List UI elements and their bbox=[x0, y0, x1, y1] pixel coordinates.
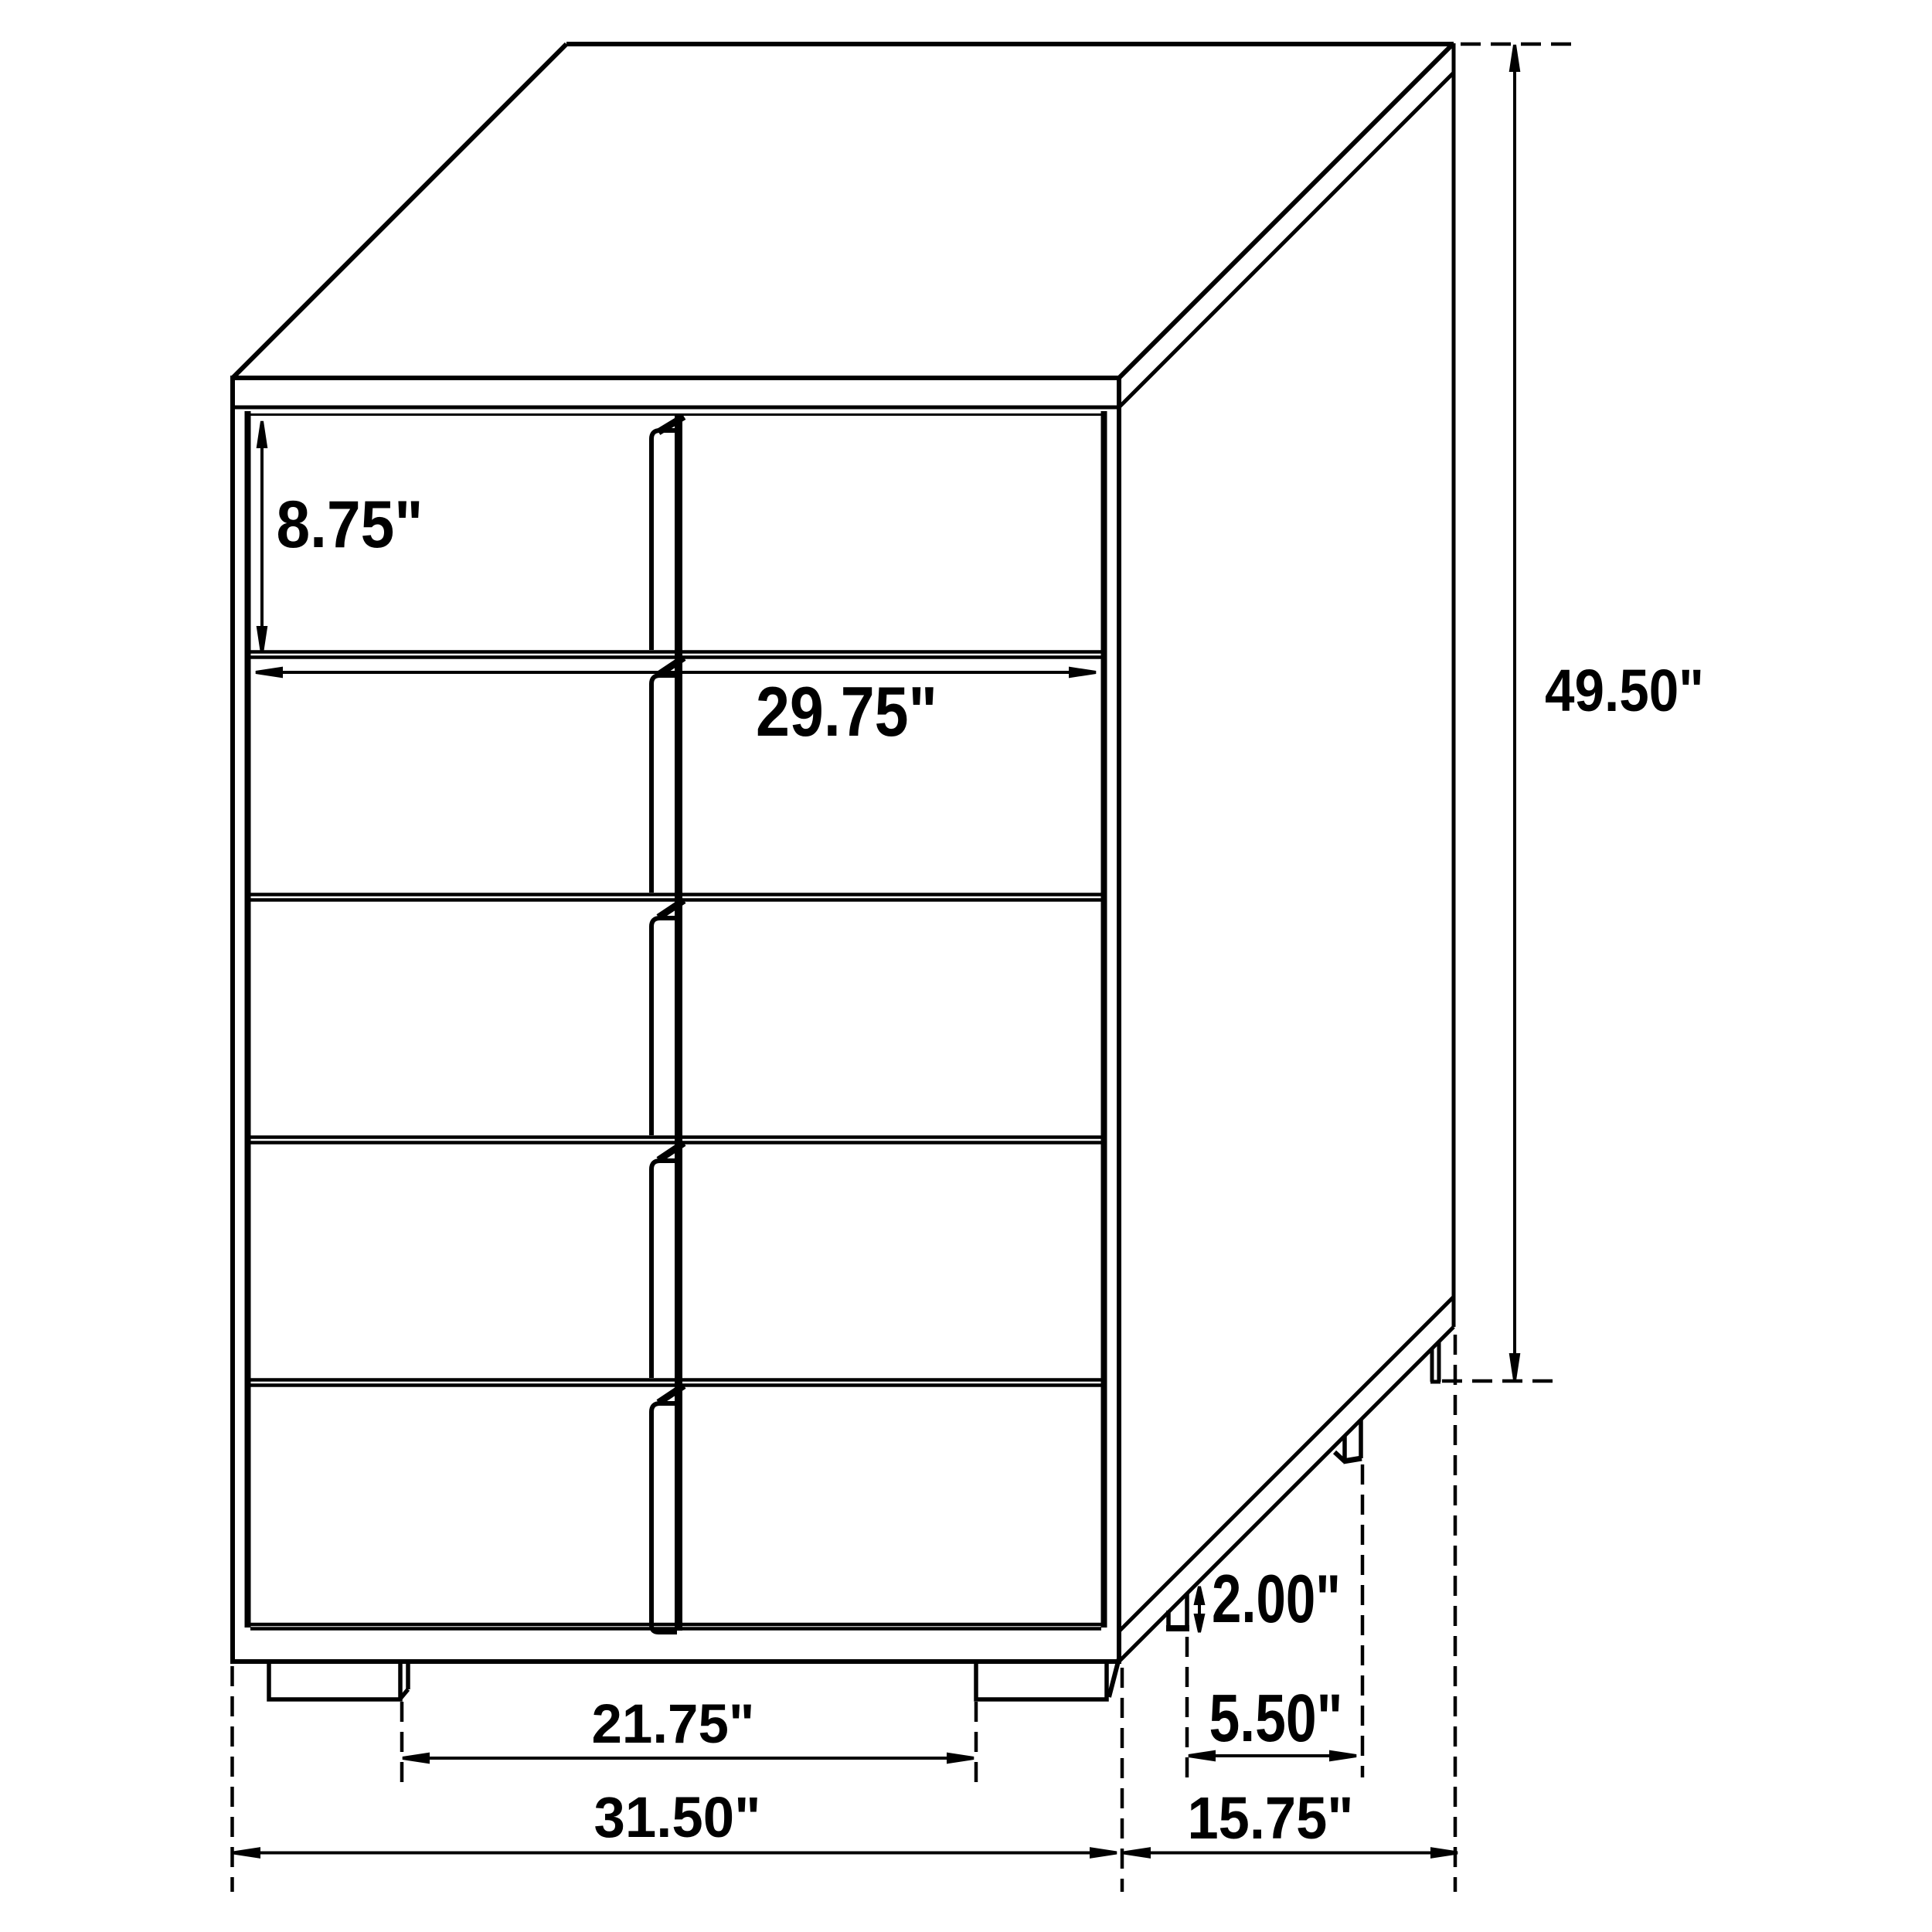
svg-text:49.50": 49.50" bbox=[1545, 658, 1704, 724]
svg-text:31.50": 31.50" bbox=[594, 1785, 761, 1849]
svg-text:5.50": 5.50" bbox=[1209, 1681, 1343, 1756]
svg-text:8.75": 8.75" bbox=[277, 488, 423, 562]
svg-text:21.75": 21.75" bbox=[592, 1693, 755, 1755]
svg-text:15.75": 15.75" bbox=[1188, 1785, 1354, 1852]
svg-text:2.00": 2.00" bbox=[1212, 1560, 1341, 1637]
svg-text:29.75": 29.75" bbox=[756, 673, 937, 751]
